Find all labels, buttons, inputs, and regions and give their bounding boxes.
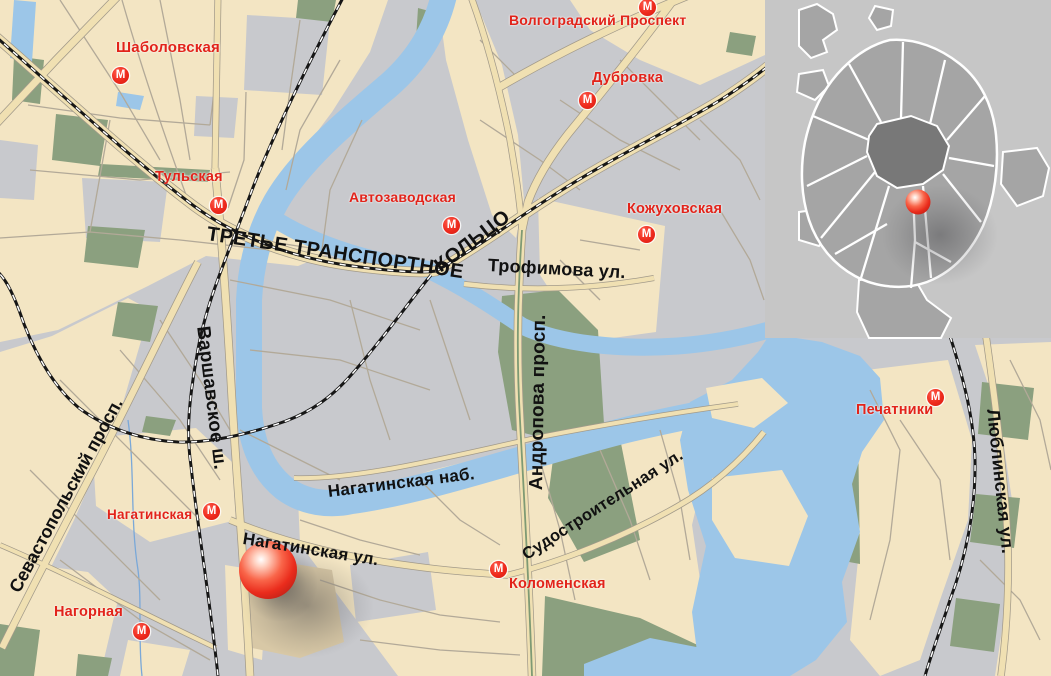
map-canvas xyxy=(0,0,1051,676)
metro-label-volgogradsky: Волгоградский Проспект xyxy=(509,13,686,27)
metro-icon-nagatinskaya: М xyxy=(203,503,220,520)
metro-label-dubrovka: Дубровка xyxy=(592,71,663,86)
metro-label-shabolovskaya: Шаболовская xyxy=(116,40,220,55)
moscow-map: ТРЕТЬЕ ТРАНСПОРТНОЕ КОЛЬЦО Трофимова ул.… xyxy=(0,0,1051,676)
metro-icon-dubrovka: М xyxy=(579,92,596,109)
metro-label-kozhukhovskaya: Кожуховская xyxy=(627,202,722,217)
metro-icon-nagornaya: М xyxy=(133,623,150,640)
metro-label-kolomenskaya: Коломенская xyxy=(509,577,606,592)
inset-map xyxy=(765,0,1051,338)
inset-location-marker xyxy=(882,185,998,285)
metro-icon-shabolovskaya: М xyxy=(112,67,129,84)
metro-icon-tulskaya: М xyxy=(210,197,227,214)
street-label-andropova: Андропова просп. xyxy=(527,314,549,490)
metro-label-avtozavodskaya: Автозаводская xyxy=(349,190,456,204)
metro-icon-kolomenskaya: М xyxy=(490,561,507,578)
metro-icon-avtozavodskaya: М xyxy=(443,217,460,234)
metro-label-pechatniki: Печатники xyxy=(856,403,933,418)
metro-icon-pechatniki: М xyxy=(927,389,944,406)
metro-icon-kozhukhovskaya: М xyxy=(638,226,655,243)
metro-label-nagornaya: Нагорная xyxy=(54,605,123,620)
metro-label-tulskaya: Тульская xyxy=(155,170,223,185)
metro-label-nagatinskaya: Нагатинская xyxy=(107,508,192,522)
